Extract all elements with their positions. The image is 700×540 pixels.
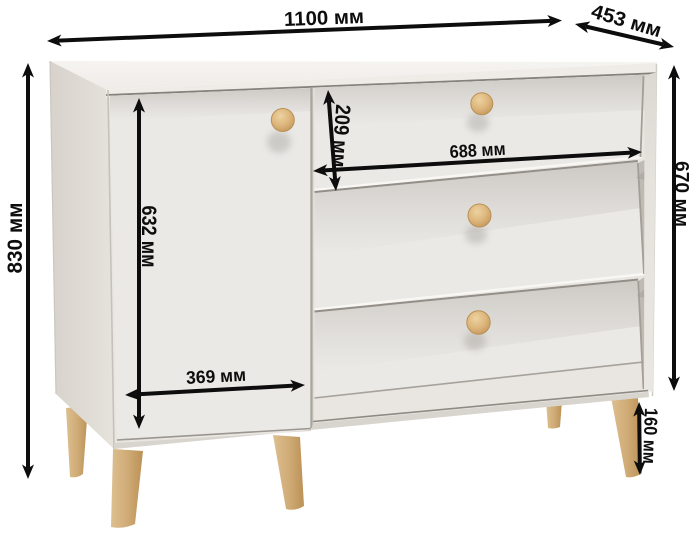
svg-text:369 мм: 369 мм xyxy=(186,365,247,388)
svg-text:160 мм: 160 мм xyxy=(639,408,662,465)
svg-text:1100 мм: 1100 мм xyxy=(284,6,365,31)
svg-text:670 мм: 670 мм xyxy=(671,161,693,227)
svg-text:688 мм: 688 мм xyxy=(449,139,506,162)
svg-text:830 мм: 830 мм xyxy=(4,203,27,274)
svg-text:209 мм: 209 мм xyxy=(327,104,354,168)
svg-text:632 мм: 632 мм xyxy=(137,206,160,268)
